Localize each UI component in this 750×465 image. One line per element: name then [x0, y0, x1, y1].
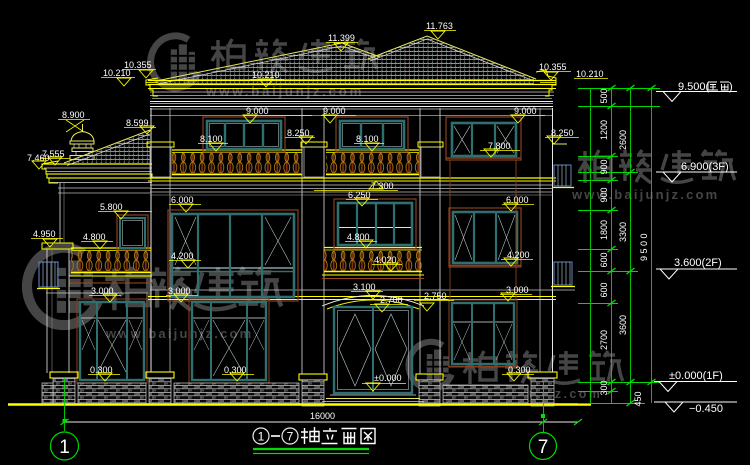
- svg-text:8.100: 8.100: [356, 134, 379, 144]
- svg-text:): ): [729, 81, 733, 93]
- svg-text:7.800: 7.800: [488, 141, 511, 151]
- svg-text:900: 900: [599, 159, 609, 174]
- svg-text:500: 500: [599, 88, 609, 103]
- svg-text:3.100: 3.100: [353, 282, 376, 292]
- svg-text:4.200: 4.200: [507, 250, 530, 260]
- svg-text:11.399: 11.399: [328, 33, 355, 43]
- svg-text:3300: 3300: [618, 222, 628, 242]
- svg-text:±0.000: ±0.000: [374, 373, 401, 383]
- svg-text:4.020: 4.020: [374, 255, 397, 265]
- svg-text:900: 900: [599, 187, 609, 202]
- svg-text:4.800: 4.800: [347, 232, 370, 242]
- svg-text:4.800: 4.800: [83, 232, 106, 242]
- svg-text:4.950: 4.950: [33, 229, 56, 239]
- svg-text:www.baijunjz.com: www.baijunjz.com: [571, 187, 719, 202]
- svg-text:7: 7: [538, 437, 549, 458]
- svg-text:2600: 2600: [618, 130, 628, 150]
- svg-text:1: 1: [59, 437, 70, 458]
- svg-text:8.250: 8.250: [551, 128, 574, 138]
- svg-text:9.000: 9.000: [514, 106, 537, 116]
- svg-text:±0.000(1F): ±0.000(1F): [669, 370, 723, 382]
- svg-text:8.100: 8.100: [200, 134, 223, 144]
- svg-text:3600: 3600: [618, 315, 628, 335]
- svg-text:−0.450: −0.450: [689, 403, 723, 415]
- svg-text:9.000: 9.000: [246, 106, 269, 116]
- svg-text:1200: 1200: [599, 120, 609, 140]
- svg-text:9500: 9500: [639, 231, 649, 261]
- svg-text:5.800: 5.800: [100, 202, 123, 212]
- svg-text:8.599: 8.599: [126, 118, 149, 128]
- svg-text:3.000: 3.000: [506, 285, 529, 295]
- svg-text:2700: 2700: [599, 330, 609, 350]
- svg-text:0.300: 0.300: [90, 365, 113, 375]
- svg-text:7: 7: [287, 430, 294, 444]
- svg-text:16000: 16000: [310, 411, 335, 421]
- svg-text:6.250: 6.250: [348, 190, 371, 200]
- svg-text:2.700: 2.700: [380, 295, 403, 305]
- svg-text:300: 300: [599, 380, 609, 395]
- svg-text:8.900: 8.900: [62, 110, 85, 120]
- svg-text:6.900(3F): 6.900(3F): [681, 161, 729, 173]
- svg-text:600: 600: [599, 252, 609, 267]
- svg-text:4.200: 4.200: [171, 251, 194, 261]
- svg-text:1800: 1800: [599, 220, 609, 240]
- svg-text:1: 1: [258, 430, 265, 444]
- svg-text:450: 450: [633, 391, 643, 406]
- svg-text:3.000: 3.000: [91, 286, 114, 296]
- svg-text:8.250: 8.250: [287, 128, 310, 138]
- svg-text:www.baijunjz.com: www.baijunjz.com: [205, 84, 364, 99]
- svg-text:10.210: 10.210: [103, 68, 131, 78]
- svg-text:6.000: 6.000: [171, 195, 194, 205]
- svg-text:3.600(2F): 3.600(2F): [674, 257, 722, 269]
- svg-text:2.750: 2.750: [424, 291, 447, 301]
- svg-text:600: 600: [599, 282, 609, 297]
- svg-text:9.000: 9.000: [323, 106, 346, 116]
- svg-text:11.763: 11.763: [426, 21, 453, 31]
- svg-text:10.210: 10.210: [576, 69, 604, 79]
- svg-text:0.300: 0.300: [508, 365, 531, 375]
- svg-text:10.210: 10.210: [252, 70, 280, 80]
- svg-text:10.355: 10.355: [539, 62, 567, 72]
- svg-text:9.500(: 9.500(: [678, 81, 710, 93]
